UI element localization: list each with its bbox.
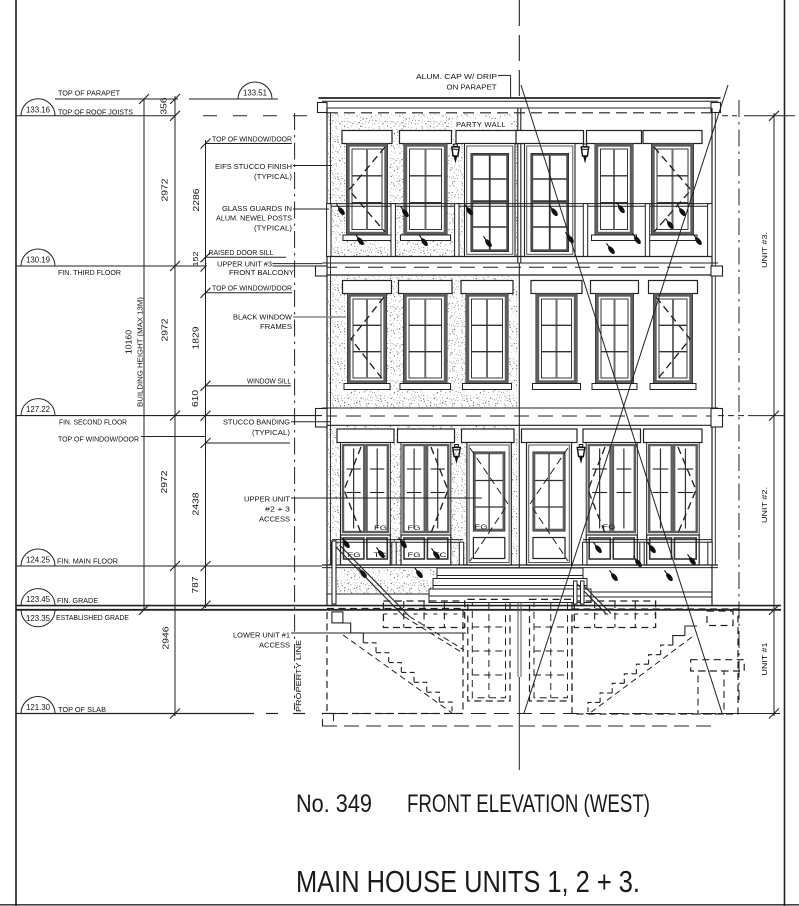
svg-text:ACCESS: ACCESS <box>259 515 290 524</box>
svg-text:FIN. THIRD FLOOR: FIN. THIRD FLOOR <box>58 268 122 277</box>
svg-text:RAISED DOOR SILL: RAISED DOOR SILL <box>209 248 274 257</box>
svg-text:BUILDING HEIGHT (MAX 13M): BUILDING HEIGHT (MAX 13M) <box>136 297 145 407</box>
svg-text:WINDOW SILL: WINDOW SILL <box>247 376 291 385</box>
svg-text:ACCESS: ACCESS <box>259 640 290 649</box>
svg-text:2438: 2438 <box>191 492 201 515</box>
svg-text:FRONT BALCONY: FRONT BALCONY <box>229 268 294 277</box>
svg-text:ON PARAPET: ON PARAPET <box>447 82 497 91</box>
svg-text:UNIT #1: UNIT #1 <box>760 643 769 676</box>
svg-text:TOP OF WINDOW/DOOR: TOP OF WINDOW/DOOR <box>212 135 293 144</box>
svg-text:FIN. GRADE: FIN. GRADE <box>57 596 98 605</box>
svg-text:133.16: 133.16 <box>26 104 50 114</box>
svg-text:2946: 2946 <box>161 626 171 649</box>
svg-text:FG: FG <box>408 552 421 559</box>
svg-text:PARTY WALL: PARTY WALL <box>456 120 506 129</box>
svg-text:UPPER UNIT: UPPER UNIT <box>244 495 290 504</box>
svg-text:UNIT #2.: UNIT #2. <box>760 487 769 523</box>
svg-text:FRAMES: FRAMES <box>260 322 292 331</box>
svg-text:124.25: 124.25 <box>26 555 50 565</box>
svg-text:127.22: 127.22 <box>26 404 50 414</box>
svg-text:FG: FG <box>475 524 488 531</box>
svg-text:FIN. MAIN FLOOR: FIN. MAIN FLOOR <box>57 556 119 565</box>
svg-text:TOP OF ROOF JOISTS: TOP OF ROOF JOISTS <box>58 108 133 117</box>
svg-text:2286: 2286 <box>191 188 201 211</box>
svg-text:TOP OF PARAPET: TOP OF PARAPET <box>58 88 120 97</box>
svg-text:2972: 2972 <box>160 178 170 201</box>
svg-text:TOP OF WINDOW/DOOR: TOP OF WINDOW/DOOR <box>58 435 140 444</box>
svg-text:STUCCO BANDING: STUCCO BANDING <box>223 418 290 427</box>
svg-text:(TYPICAL): (TYPICAL) <box>254 172 293 181</box>
svg-text:FIN. SECOND FLOOR: FIN. SECOND FLOOR <box>59 417 128 426</box>
svg-text:TOP OF SLAB: TOP OF SLAB <box>58 705 106 714</box>
svg-text:MAIN HOUSE UNITS 1, 2 + 3.: MAIN HOUSE UNITS 1, 2 + 3. <box>296 864 640 899</box>
svg-text:133.51: 133.51 <box>243 88 267 98</box>
svg-text:(TYPICAL): (TYPICAL) <box>252 428 291 437</box>
svg-text:121.30: 121.30 <box>26 702 50 712</box>
svg-text:FG: FG <box>408 525 421 532</box>
svg-text:610: 610 <box>190 390 200 407</box>
svg-text:787: 787 <box>190 576 200 593</box>
svg-text:2972: 2972 <box>159 470 169 493</box>
svg-text:#2 + 3: #2 + 3 <box>265 505 290 514</box>
svg-text:GLASS GUARDS IN: GLASS GUARDS IN <box>222 204 292 213</box>
svg-text:PROPERTY LINE: PROPERTY LINE <box>294 640 303 712</box>
svg-text:123.35: 123.35 <box>26 613 50 623</box>
svg-text:130.19: 130.19 <box>26 255 50 265</box>
svg-text:ALUM. CAP W/ DRIP: ALUM. CAP W/ DRIP <box>416 72 497 81</box>
svg-text:1829: 1829 <box>191 326 201 349</box>
svg-text:356: 356 <box>159 97 169 114</box>
svg-text:FG: FG <box>374 525 387 532</box>
svg-text:UPPER UNIT #3: UPPER UNIT #3 <box>217 259 272 268</box>
svg-text:123.45: 123.45 <box>26 594 50 604</box>
svg-text:EIFS STUCCO FINISH: EIFS STUCCO FINISH <box>215 162 292 171</box>
svg-text:BLACK WINDOW: BLACK WINDOW <box>233 313 293 322</box>
svg-text:ESTABLISHED GRADE: ESTABLISHED GRADE <box>56 613 129 622</box>
svg-text:2972: 2972 <box>160 318 170 341</box>
svg-text:ALUM. NEWEL POSTS: ALUM. NEWEL POSTS <box>216 214 292 223</box>
svg-text:UNIT #3.: UNIT #3. <box>760 232 769 268</box>
svg-text:10160: 10160 <box>124 330 134 354</box>
svg-text:No. 349: No. 349 <box>296 790 372 818</box>
svg-text:FG: FG <box>603 524 616 531</box>
svg-text:152: 152 <box>191 252 200 267</box>
svg-text:FRONT ELEVATION (WEST): FRONT ELEVATION (WEST) <box>407 790 650 818</box>
svg-text:TOP OF WINDOW/DOOR: TOP OF WINDOW/DOOR <box>212 284 293 293</box>
svg-text:LOWER UNIT #1: LOWER UNIT #1 <box>233 631 290 640</box>
svg-text:(TYPICAL): (TYPICAL) <box>254 224 293 233</box>
